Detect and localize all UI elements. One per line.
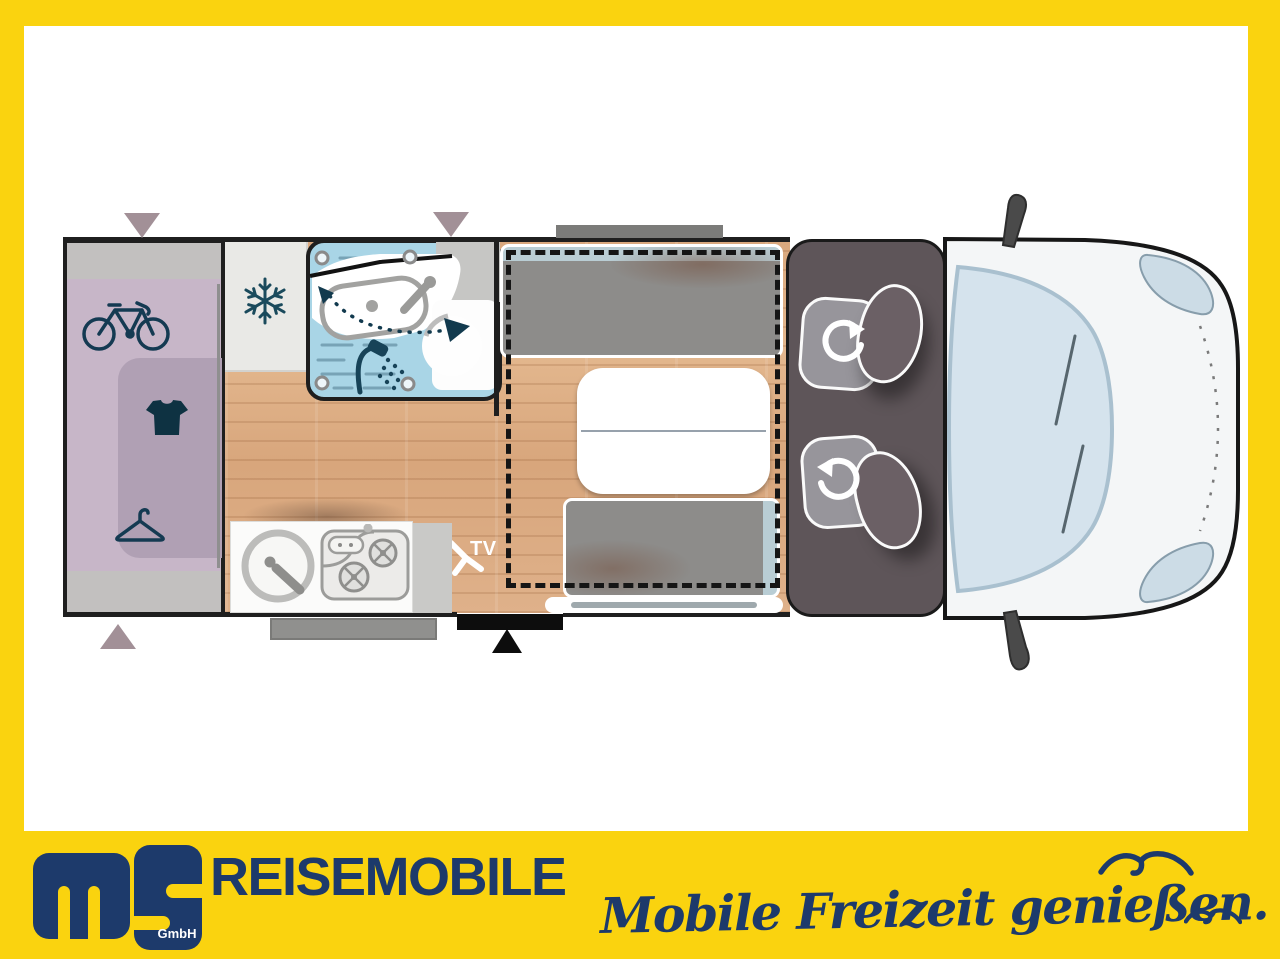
seagull-icon <box>1184 904 1242 934</box>
dealer-floorplan-advert: TV <box>0 0 1280 959</box>
rotate-arrow-icon <box>814 456 866 508</box>
drop-down-bed-outline <box>506 250 780 588</box>
frame-border-top <box>0 0 1280 26</box>
vehicle-front <box>940 183 1252 683</box>
kitchen-side-panel <box>413 523 452 613</box>
entry-door-marker <box>457 614 563 630</box>
logo-suffix: GmbH <box>150 926 204 941</box>
tv-label: TV <box>470 538 497 561</box>
logo-detail <box>88 886 100 939</box>
frame-border-left <box>0 0 24 959</box>
flap-marker-bottom <box>100 624 136 649</box>
rotate-arrow-icon <box>816 318 868 370</box>
logo-monogram <box>33 853 130 939</box>
tshirt-icon <box>146 400 188 436</box>
bathroom <box>306 237 506 404</box>
sliding-partition <box>217 284 220 568</box>
window-marker <box>556 225 723 238</box>
bicycle-icon <box>80 294 172 352</box>
logo-detail <box>166 884 202 898</box>
stove <box>320 524 412 604</box>
cab-area <box>786 239 946 617</box>
snowflake-icon <box>241 277 289 325</box>
seagull-icon <box>1098 846 1194 890</box>
frame-border-right <box>1248 0 1280 959</box>
brand-name: REISEMOBILE <box>210 846 566 908</box>
sink <box>240 526 320 606</box>
wall <box>494 241 499 416</box>
flap-marker-mid <box>433 212 469 237</box>
bench-side-board <box>545 597 783 613</box>
entry-door-arrow <box>492 629 522 653</box>
logo-detail <box>58 886 70 939</box>
entry-step <box>270 618 437 640</box>
flap-marker-rear <box>124 213 160 238</box>
hanger-icon <box>112 502 168 546</box>
